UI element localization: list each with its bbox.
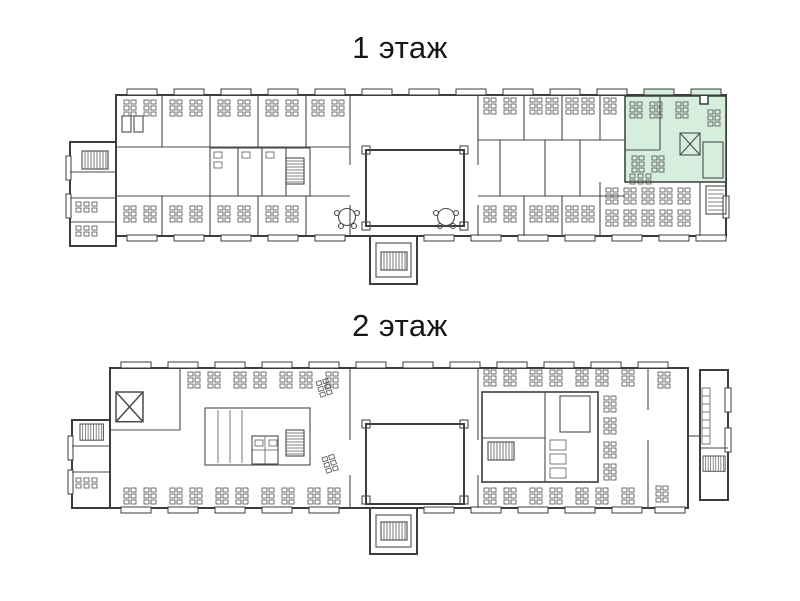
floor2-outline: [72, 368, 728, 554]
highlighted-unit-overlay: [625, 96, 726, 182]
floorplan-image: 1 этаж 2 этаж: [0, 0, 800, 601]
floorplans-drawing: [0, 0, 800, 601]
floor1-plan: [66, 89, 729, 284]
floor2-plan: [68, 362, 731, 554]
